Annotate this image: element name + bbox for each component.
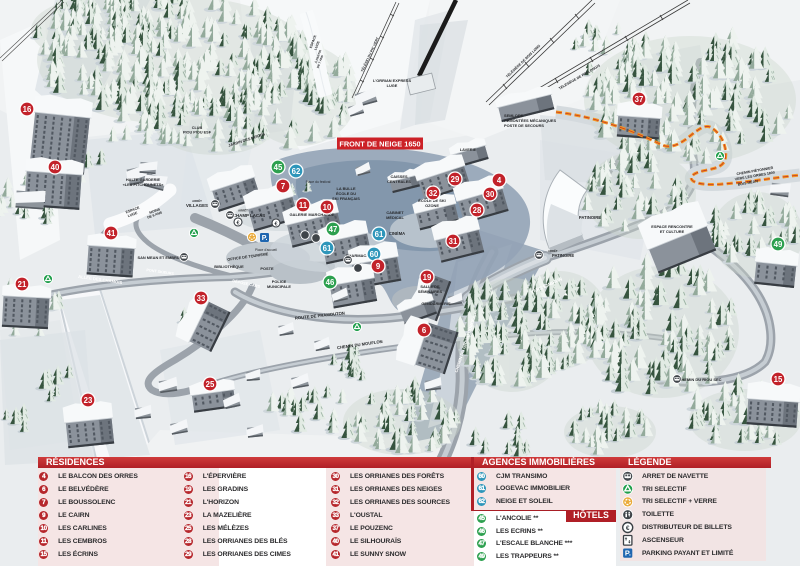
svg-text:19: 19 [423,273,432,282]
svg-text:PATINOIRE: PATINOIRE [552,253,574,258]
svg-text:49: 49 [774,240,783,249]
svg-text:P.: P. [262,235,268,242]
svg-text:Place du festival: Place du festival [306,180,331,184]
svg-text:CINÉMA: CINÉMA [389,231,405,236]
svg-text:62: 62 [292,167,301,176]
svg-text:37: 37 [635,95,644,104]
svg-text:LUGE: LUGE [387,83,398,88]
svg-text:«LES PITCHOUNETS»: «LES PITCHOUNETS» [123,182,164,187]
svg-text:47: 47 [329,225,338,234]
svg-text:ARRÊT: ARRÊT [192,198,202,203]
svg-text:POSTE DE SECOURS: POSTE DE SECOURS [504,123,544,128]
svg-text:LAVERIE: LAVERIE [460,147,477,152]
svg-text:PIOU PIOU ESF: PIOU PIOU ESF [183,131,212,135]
svg-text:41: 41 [107,229,116,238]
svg-text:10: 10 [323,203,332,212]
svg-text:61: 61 [323,244,332,253]
svg-text:28: 28 [473,206,482,215]
svg-text:ET CULTURE: ET CULTURE [660,229,685,234]
svg-text:7: 7 [281,182,285,191]
svg-text:MUNICIPALE: MUNICIPALE [267,284,291,289]
svg-text:11: 11 [299,201,308,210]
svg-text:4: 4 [497,176,502,185]
svg-text:SÉMINAIRES: SÉMINAIRES [418,289,443,294]
svg-text:GENDARMERIE: GENDARMERIE [421,301,451,306]
svg-text:SAN MEAN ET EMBRUN: SAN MEAN ET EMBRUN [138,255,183,260]
svg-text:33: 33 [197,294,206,303]
svg-text:BIBLIOTHÈQUE: BIBLIOTHÈQUE [214,264,244,269]
svg-text:46: 46 [326,278,335,287]
svg-text:9: 9 [376,262,381,271]
svg-text:23: 23 [84,396,93,405]
svg-text:21: 21 [18,280,27,289]
svg-text:CENTRALES: CENTRALES [387,179,411,184]
svg-text:40: 40 [51,163,60,172]
svg-text:ARRÊT: ARRÊT [548,248,558,253]
svg-text:32: 32 [429,189,438,198]
svg-text:6: 6 [422,326,427,335]
svg-text:CLUB: CLUB [192,126,203,130]
svg-text:31: 31 [449,237,458,246]
svg-text:30: 30 [486,190,495,199]
svg-text:MÉDICAL: MÉDICAL [386,215,404,220]
svg-text:FRONT DE NEIGE 1650: FRONT DE NEIGE 1650 [339,140,420,149]
svg-text:45: 45 [274,163,283,172]
svg-text:ARRÊT: ARRÊT [238,208,248,213]
svg-text:Place d'accueil: Place d'accueil [255,248,277,252]
svg-text:CHEMIN DU RIOU SEC: CHEMIN DU RIOU SEC [678,377,721,382]
svg-text:60: 60 [370,250,379,259]
svg-text:15: 15 [774,375,783,384]
svg-text:25: 25 [206,380,215,389]
svg-text:VILLAGES: VILLAGES [186,203,208,208]
svg-text:29: 29 [451,175,460,184]
svg-text:OZONE: OZONE [425,203,439,208]
svg-text:PATINOIRE: PATINOIRE [579,215,601,220]
svg-text:16: 16 [23,105,32,114]
svg-text:61: 61 [375,230,384,239]
svg-text:CHAMP LACAS: CHAMP LACAS [233,213,265,218]
svg-text:POSTE: POSTE [260,266,274,271]
svg-text:SKI FRANÇAIS: SKI FRANÇAIS [332,196,360,201]
